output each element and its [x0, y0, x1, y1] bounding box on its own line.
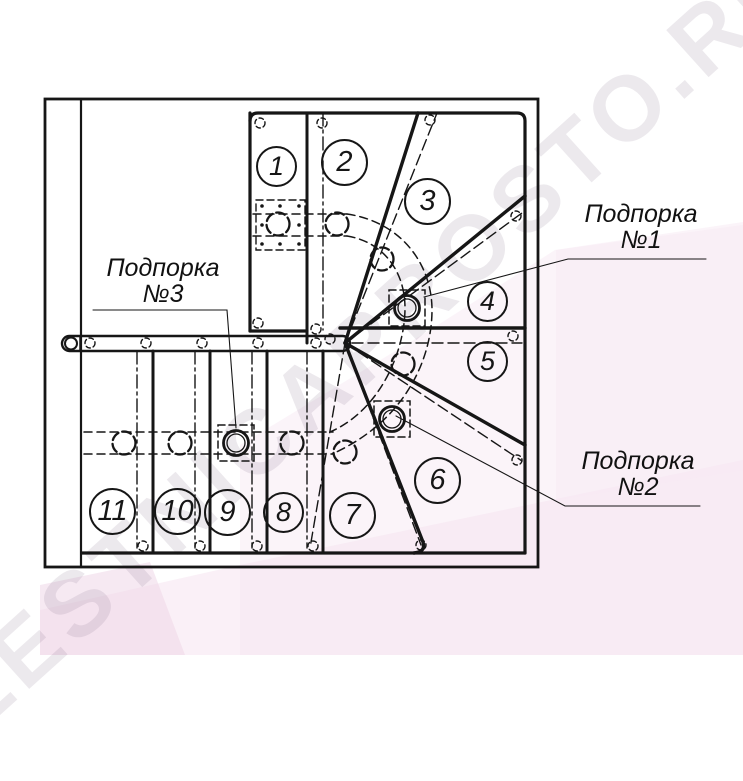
support-label-1-line1: Подпорка — [556, 201, 726, 227]
step-number-2: 2 — [321, 139, 368, 186]
step-number-1: 1 — [256, 146, 297, 187]
step-number-10: 10 — [154, 488, 201, 535]
leader-support-3 — [93, 310, 236, 428]
step-number-9: 9 — [204, 489, 251, 536]
step-number-8: 8 — [263, 492, 304, 533]
baluster-posts — [113, 213, 415, 464]
step-number-3: 3 — [404, 178, 451, 225]
step-number-7: 7 — [329, 492, 376, 539]
step-number-11: 11 — [89, 488, 136, 535]
support-post-1 — [389, 290, 425, 326]
leader-support-1 — [424, 259, 706, 297]
step-number-4: 4 — [467, 281, 508, 322]
staircase-plan-page: { "drawing": { "title": "Winder staircas… — [0, 0, 743, 655]
support-label-3-line1: Подпорка — [78, 255, 248, 281]
support-label-1: Подпорка №1 — [556, 201, 726, 254]
step-number-5: 5 — [467, 341, 508, 382]
support-label-3-line2: №3 — [78, 281, 248, 307]
support-label-2-line2: №2 — [553, 474, 723, 500]
support-post-3 — [218, 425, 254, 461]
step-number-6: 6 — [414, 457, 461, 504]
staircase-drawing — [0, 0, 743, 655]
support-label-3: Подпорка №3 — [78, 255, 248, 308]
support-label-1-line2: №1 — [556, 227, 726, 253]
support-label-2: Подпорка №2 — [553, 448, 723, 501]
support-label-2-line1: Подпорка — [553, 448, 723, 474]
